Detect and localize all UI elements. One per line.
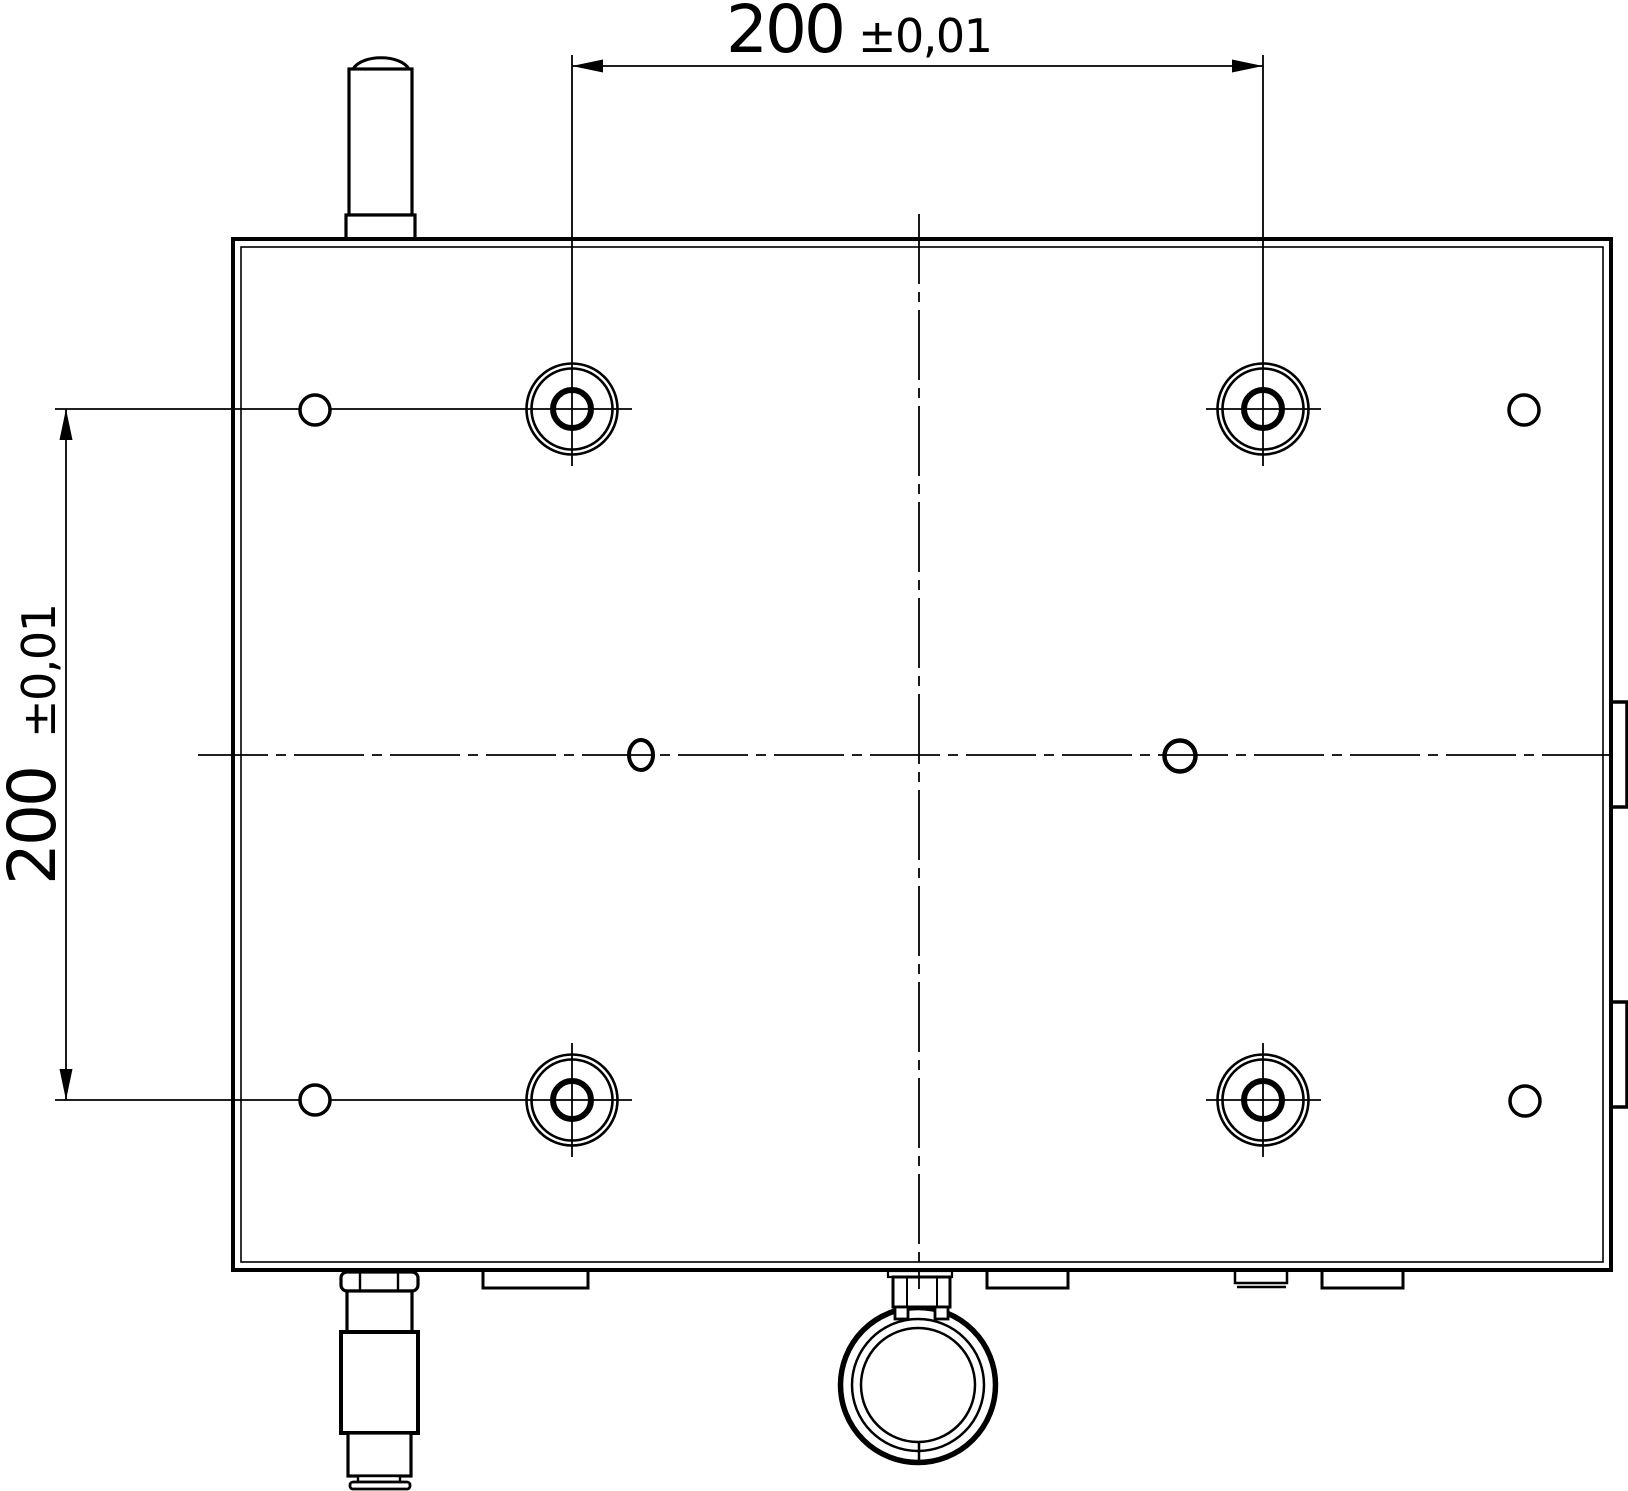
fitting-body [341,1332,418,1433]
horizontal-dimension-value: 200 [726,0,843,68]
locating-pin [346,58,415,239]
pin-base [346,215,415,239]
dimension-vertical [60,409,73,1100]
horizontal-dimension-tolerance: ±0,01 [858,9,991,63]
ring-clamp [888,1271,952,1319]
lifting-eye-ring [841,1271,996,1463]
clamp-jaw-right [935,1307,948,1319]
corner-hole-top-right [1509,395,1539,425]
right-tab-1 [1611,702,1627,807]
corner-hole-bottom-left [300,1085,330,1115]
ring-mid-circle [852,1319,984,1451]
arrowhead-right [1232,60,1263,73]
fitting-neck [347,1291,412,1332]
ring-outer-circle [841,1308,996,1463]
arrowhead-left [572,60,603,73]
vertical-dimension-value: 200 [0,768,71,885]
arrowhead-bottom [60,1069,73,1100]
vertical-dimension-tolerance: ±0,01 [12,605,66,738]
corner-hole-bottom-right [1510,1086,1540,1116]
technical-drawing-canvas: 200 ±0,01 200 ±0,01 [0,0,1628,1491]
bottom-tab-2 [987,1270,1068,1288]
right-tabs [1611,702,1627,1107]
pneumatic-fitting [341,1272,418,1489]
corner-hole-top-left [300,395,330,425]
fitting-release-collar [350,1482,410,1489]
bottom-tab-1 [483,1270,588,1288]
pin-dome [353,58,409,69]
fitting-hex-nut [341,1272,418,1291]
clamp-jaw-left [895,1307,908,1319]
fitting-lower-section [348,1433,411,1476]
bottom-tab-4 [1322,1270,1403,1288]
right-tab-2 [1611,1002,1627,1107]
drawing-svg: 200 ±0,01 200 ±0,01 [0,0,1628,1491]
arrowhead-top [60,409,73,440]
ring-inner-circle [861,1328,975,1442]
clamp-neck [893,1277,950,1307]
pin-body [349,69,412,215]
